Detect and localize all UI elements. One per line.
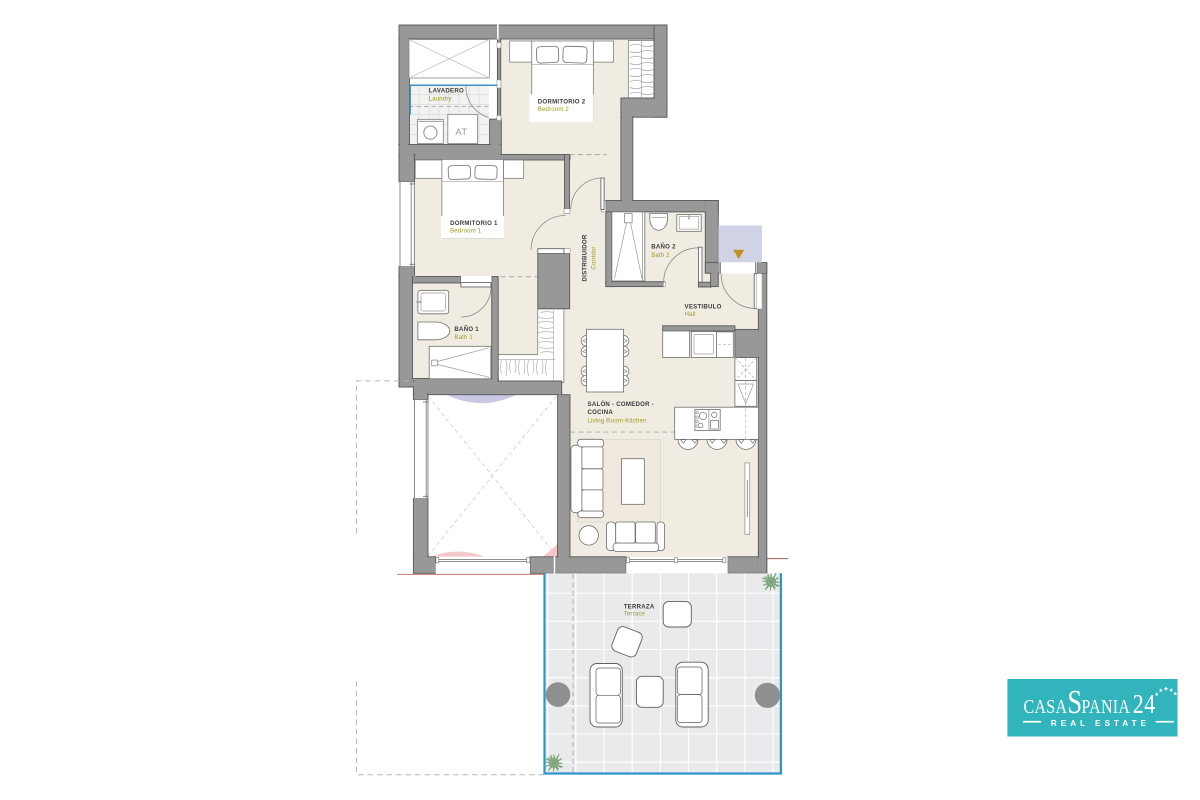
svg-text:Bath 1: Bath 1 — [454, 334, 473, 341]
svg-text:Bedroom 1: Bedroom 1 — [450, 227, 482, 234]
svg-text:Laundry: Laundry — [429, 95, 453, 102]
svg-text:BAÑO 2: BAÑO 2 — [651, 244, 676, 251]
svg-text:AT: AT — [455, 127, 467, 138]
svg-text:Terrace: Terrace — [624, 611, 646, 618]
svg-text:LAVADERO: LAVADERO — [429, 87, 464, 94]
svg-text:SALÓN - COMEDOR -: SALÓN - COMEDOR - — [588, 400, 655, 408]
svg-text:Bedroom 2: Bedroom 2 — [538, 106, 570, 113]
svg-text:VESTIBULO: VESTIBULO — [685, 304, 722, 311]
svg-text:Hall: Hall — [685, 311, 696, 318]
svg-text:Living Room-Kitchen: Living Room-Kitchen — [588, 418, 647, 425]
svg-text:TERRAZA: TERRAZA — [624, 604, 655, 611]
svg-text:DORMITORIO 1: DORMITORIO 1 — [450, 220, 498, 227]
svg-text:COCINA: COCINA — [588, 409, 614, 416]
svg-text:BAÑO 1: BAÑO 1 — [454, 326, 479, 333]
svg-text:DORMITORIO 2: DORMITORIO 2 — [538, 98, 586, 105]
svg-text:Bath 2: Bath 2 — [651, 252, 670, 259]
svg-text:DISTRIBUIDOR: DISTRIBUIDOR — [582, 234, 589, 281]
svg-text:Corridor: Corridor — [591, 246, 598, 269]
svg-text:REAL ESTATE: REAL ESTATE — [1051, 718, 1150, 728]
